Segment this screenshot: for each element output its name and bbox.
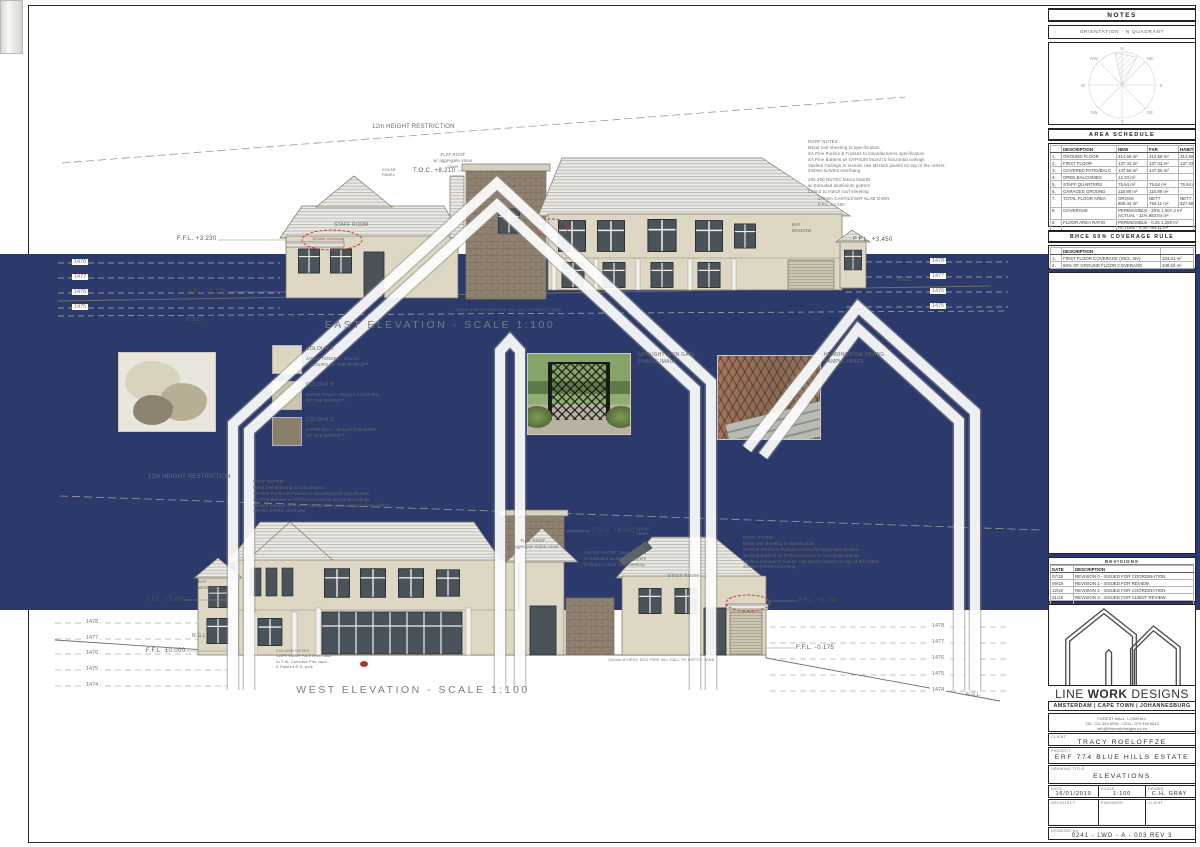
cell: DESCRIPTION [1062, 146, 1117, 153]
cell: 147.56 m² [1117, 167, 1148, 174]
bay-line: WINDOW [198, 585, 218, 591]
coverage-table: DESCRIPTION 1. FIRST FLOOR COVERAGE (INC… [1050, 247, 1194, 269]
west-elevation-drawing [55, 496, 1040, 701]
client-signature-box: CLIENT [1146, 800, 1193, 825]
client-name: TRACY ROELOFFZE [1049, 734, 1195, 746]
cell: 75.64 m² [1117, 181, 1148, 188]
colour-desc-line: JAPAN TRULY - DULUX COLOURS [306, 392, 379, 398]
contour-label: 1477 [930, 639, 946, 645]
area-schedule-table: DESCRIPTION NEW FAR HABITABLE 1. GROUND … [1048, 143, 1196, 227]
flat-roof-note-west: FLAT ROOF w/ aggregate stone cover [504, 538, 562, 550]
area-row: 8. COVERAGE PERMISSIBLE - 20% 1,007.2 m²… [1051, 207, 1194, 219]
contour-label: 1474 [84, 682, 100, 688]
cell: FIRST FLOOR [1062, 160, 1117, 167]
revisions-box: REVISIONS DATE DESCRIPTION 07/18 REVISIO… [1048, 557, 1196, 602]
drawing-title-label: DRAWING TITLE [1051, 767, 1084, 771]
signature-row: ARCHITECT ENGINEER CLIENT [1048, 799, 1196, 826]
gate-label-line: SAMPLE IMAGE [637, 359, 695, 366]
toc-label-west: T.O.C. +8.210 [592, 527, 634, 535]
cell: 6. [1051, 188, 1062, 195]
cell: 3. [1051, 167, 1062, 174]
svg-text:N: N [1120, 46, 1123, 51]
cell: REVISION 1 - ISSUED FOR REVIEW [1074, 580, 1194, 587]
fascia-line: w/ Extruded aluminium gutters [808, 183, 870, 189]
paving-label-line: HERRINGBONE PAVING [824, 352, 884, 359]
blank-notes-box [1048, 272, 1196, 554]
cell [1179, 174, 1194, 181]
sewer-note-east: 110mm Ø UPVC SOIL PIPE min. FALL TO SEPT… [455, 308, 561, 313]
contour-label: 1478 [930, 623, 946, 629]
contour-label: 1478 [930, 258, 946, 264]
cell: NETT527.66 m² [1179, 195, 1194, 207]
contact-box: FOREST MALL, LONEHILL TEL: 011 463 6936 … [1048, 713, 1196, 732]
svg-text:NW: NW [1090, 56, 1098, 61]
scale-label: SCALE [1101, 787, 1115, 791]
flat-roof-line: w/ aggregate stone cover [504, 544, 562, 550]
cell: 1. [1051, 255, 1062, 262]
roof-note-line: 400mm EAVES Overhang [253, 508, 390, 514]
cell-line: 794.11 m² [1149, 201, 1177, 206]
cell-line: 806.44 m² [1118, 201, 1146, 206]
solar-line: PANEL [382, 173, 396, 178]
contour-label: 1474 [930, 687, 946, 693]
cell: 2. [1051, 160, 1062, 167]
toc-label-east: T.O.C. +8.210 [413, 167, 455, 175]
staff-room-label-west: STAFF ROOM [668, 573, 699, 579]
coverage-rule-header: BHCE 60% COVERAGE RULE [1048, 230, 1196, 243]
notes-header: NOTES [1048, 8, 1196, 22]
colour-b-desc: JAPAN TRULY - DULUX COLOURS OF THE WORLD… [306, 392, 379, 404]
drawing-title-box: DRAWING TITLE ELEVATIONS [1048, 765, 1196, 784]
cell: 314.58 m² [1117, 153, 1148, 160]
elevation-line-art [0, 0, 1200, 847]
area-header-row: DESCRIPTION NEW FAR HABITABLE [1051, 146, 1194, 153]
cell: FAR [1148, 146, 1179, 153]
orientation-text: ORIENTATION - N QUADRANT [1049, 26, 1195, 34]
cell: REVISION 0 - ISSUED FOR COORDINATION [1074, 573, 1194, 580]
solar-line: PANEL [636, 532, 650, 537]
orientation-bar: ORIENTATION - N QUADRANT [1048, 25, 1196, 39]
contour-label: 1475 [72, 304, 88, 310]
gate-sample-label: WROUGHT IRON GATE SAMPLE IMAGE [637, 352, 695, 366]
compass-north-wedge [1115, 53, 1137, 85]
cell: OPEN BALCONIES [1062, 174, 1117, 181]
cell: 1. [1051, 153, 1062, 160]
drawing-number-label: DRAWING No. [1051, 829, 1079, 833]
cell: 314.58 m² [1179, 153, 1194, 160]
contour-label: 1476 [84, 650, 100, 656]
cell: 07/18 [1051, 573, 1074, 580]
roof-note-line: 400mm EAVES Overhang [743, 564, 880, 570]
area-row: 3. COVERED PATIO/BALC 147.56 m² 147.56 m… [1051, 167, 1194, 174]
coverage-header-row: DESCRIPTION [1051, 248, 1194, 255]
colour-b-label: COLOUR B [306, 382, 334, 389]
solar-panel-label-east: SOLAR PANEL [382, 168, 396, 179]
engineer-label: ENGINEER [1101, 801, 1123, 805]
roof-notes-west-1: ROOF NOTES: Metal roof sheeting to speci… [253, 479, 390, 514]
west-elevation-title: WEST ELEVATION - SCALE 1:100 [278, 683, 548, 698]
ffl-east-right: F.F.L. +3.450 [853, 236, 893, 244]
cell: HABITABLE [1179, 146, 1194, 153]
bay-window-label-west: BAY WINDOW [198, 579, 218, 591]
svg-text:NE: NE [1147, 56, 1153, 61]
east-elevation-title: EAST ELEVATION - SCALE 1:100 [300, 318, 580, 333]
colour-a-label: COLOUR A [306, 346, 333, 353]
contour-label: 1476 [930, 288, 946, 294]
colour-c-desc: JAPAN RICH - DULUX COLOURS OF THE WORLD™ [306, 427, 376, 439]
revision-row: 09/18 REVISION 1 - ISSUED FOR REVIEW [1051, 580, 1194, 587]
project-label: PROJECT [1051, 749, 1071, 753]
revision-row: 12/18 REVISION 2 - ISSUED FOR COORDINATI… [1051, 587, 1194, 594]
revisions-header-row: DATE DESCRIPTION [1051, 566, 1194, 573]
colour-c-label: COLOUR C [306, 417, 334, 424]
coverage-rule-title: BHCE 60% COVERAGE RULE [1049, 232, 1195, 240]
cell: 137.43 m² [1117, 160, 1148, 167]
ngl-label-west-right: N.G.L. [966, 692, 982, 699]
contour-label: 1475 [84, 666, 100, 672]
cell: COVERAGE [1062, 207, 1117, 219]
paving-label-line: SAMPLE IMAGE [824, 359, 884, 366]
ffl-west-base: F.F.L. -0.175 [796, 644, 834, 652]
contour-label: 1475 [930, 303, 946, 309]
contour-label: 1478 [72, 259, 88, 265]
ngl-label-west-left: N.G.L. [192, 633, 208, 640]
fascia-line: Colour to match roof sheeting [584, 562, 646, 568]
cell: FIRST FLOOR COVERAGE (INCL. BV) [1062, 255, 1161, 262]
cell-line: ACTUAL - 11% 553.04 m² [1118, 213, 1192, 218]
cell [1148, 174, 1179, 181]
revision-row: 07/18 REVISION 0 - ISSUED FOR COORDINATI… [1051, 573, 1194, 580]
coverage-row: 1. FIRST FLOOR COVERAGE (INCL. BV) 224.3… [1051, 255, 1194, 262]
fascia-note-west: 230-300 NUTEC fascia boards w/ Extruded … [584, 550, 646, 568]
cell: 12/18 [1051, 587, 1074, 594]
brand-cities-bar: AMSTERDAM | CAPE TOWN | JOHANNESBURG [1048, 701, 1196, 711]
cell: REVISION 3 - ISSUED FOR CLIENT REVIEW [1074, 594, 1194, 601]
cell: DESCRIPTION [1062, 248, 1161, 255]
cell: 137.43 m² [1148, 160, 1179, 167]
cell: 01/19 [1051, 594, 1074, 601]
area-row: 5. STAFF QUARTERS 75.64 m² 75.64 m² 75.6… [1051, 181, 1194, 188]
roof-note-line: SA Pine Purlins & Trusses to manufacture… [808, 151, 945, 157]
roof-note-line: SA Pine Battens w/ GYPSUM board to horiz… [808, 157, 945, 163]
cell: 4. [1051, 174, 1062, 181]
cell [1161, 248, 1194, 255]
column-notes-west: COLUMN NOTES: CAPE WASH Face brick base … [276, 649, 332, 670]
cell: DESCRIPTION [1074, 566, 1194, 573]
scale-box: SCALE 1:100 [1099, 786, 1146, 797]
cell: GROSS806.44 m² [1117, 195, 1148, 207]
roof-notes-east: ROOF NOTES: Metal roof sheeting to speci… [808, 139, 945, 174]
engineer-signature-box: ENGINEER [1099, 800, 1146, 825]
logo-box [1048, 604, 1196, 686]
cell: 137.43 m² [1179, 160, 1194, 167]
roof-notes-west-2: ROOF NOTES: Metal roof sheeting to speci… [743, 535, 880, 570]
cell: 09/18 [1051, 580, 1074, 587]
cell: 7. [1051, 195, 1062, 207]
coverage-row: 2. 60% OF GROUND FLOOR COVERAGE 348.62 m… [1051, 262, 1194, 269]
cell [1051, 146, 1062, 153]
area-row: 6. GARAGES GROUND 118.89 m² 118.89 m² [1051, 188, 1194, 195]
column-note-line: CAPE WASH Face brick base [276, 654, 332, 659]
cell [1051, 248, 1062, 255]
gate-label-line: WROUGHT IRON GATE [637, 352, 695, 359]
architect-label: ARCHITECT [1051, 801, 1075, 805]
roof-note-line: SA Pine Purlins & Trusses to manufacture… [743, 547, 880, 553]
brand-line: LINE [1055, 687, 1088, 701]
cell: 118.89 m² [1117, 188, 1148, 195]
cell: NEW [1117, 146, 1148, 153]
coverage-rule-table: DESCRIPTION 1. FIRST FLOOR COVERAGE (INC… [1048, 245, 1196, 269]
cell: 118.89 m² [1148, 188, 1179, 195]
notes-title: NOTES [1049, 10, 1195, 19]
area-row: 1. GROUND FLOOR 314.58 m² 314.58 m² 314.… [1051, 153, 1194, 160]
sewer-note-west: 110mm Ø UPVC SOIL PIPE min. FALL TO SEPT… [608, 658, 714, 663]
svg-text:W: W [1081, 83, 1086, 88]
fascia-note-east: 230-300 NUTEC fascia boards w/ Extruded … [808, 177, 870, 195]
drawing-number-box: DRAWING No. 0241 - LWD - A - 003 REV 3 [1048, 827, 1196, 840]
solar-panel-label-west: SOLAR PANEL [636, 527, 650, 538]
area-schedule-header: AREA SCHEDULE [1048, 128, 1196, 141]
brand-cities: AMSTERDAM | CAPE TOWN | JOHANNESBURG [1049, 702, 1195, 709]
area-row: 2. FIRST FLOOR 137.43 m² 137.43 m² 137.4… [1051, 160, 1194, 167]
revision-row: 01/19 REVISION 3 - ISSUED FOR CLIENT REV… [1051, 594, 1194, 601]
contour-label: 1478 [84, 619, 100, 625]
cell: 8. [1051, 207, 1062, 219]
cell: PERMISSIBLE - 20% 1,007.2 m²ACTUAL - 11%… [1117, 207, 1194, 219]
staff-room-label-east: STAFF ROOM [334, 222, 368, 229]
drawing-sheet: 12m HEIGHT RESTRICTION ROOF NOTES: Metal… [0, 0, 1200, 847]
roof-note-line: 400mm EAVES Overhang [808, 168, 945, 174]
ffl-east-left: F.F.L. +3.230 [177, 235, 217, 243]
date-label: DATE [1051, 787, 1062, 791]
client-box: CLIENT TRACY ROELOFFZE [1048, 733, 1196, 746]
fascia-line: 230-300 NUTEC fascia boards [808, 177, 870, 183]
roof-note-line: SA Pine Purlins & Trusses to manufacture… [253, 491, 390, 497]
roof-note-line: SA Pine Battens w/ GYPSUM board to horiz… [743, 553, 880, 559]
ffl-west-left: F.F.L. +3.450 [146, 596, 186, 604]
colour-desc-line: OF THE WORLD™ [306, 433, 376, 439]
area-table: DESCRIPTION NEW FAR HABITABLE 1. GROUND … [1050, 145, 1194, 239]
cell: NETT794.11 m² [1148, 195, 1179, 207]
contour-label: 1477 [930, 273, 946, 279]
contour-label: 1475 [930, 671, 946, 677]
cell: 147.56 m² [1148, 167, 1179, 174]
cell: GROUND FLOOR [1062, 153, 1117, 160]
date-scale-drawn-row: DATE 16/01/2019 SCALE 1:100 DRAWN C.H. G… [1048, 785, 1196, 798]
cell: 224.31 m² [1161, 255, 1194, 262]
contour-label: 1477 [72, 274, 88, 280]
colour-desc-line: COLOURS OF THE WORLD™ [306, 362, 368, 368]
cantilever-line: 170mm CANTILEVER SLAB OVER [818, 196, 890, 202]
area-row: 7. TOTAL FLOOR AREA GROSS806.44 m² NETT7… [1051, 195, 1194, 207]
cantilever-line: F.F.L. +3.450 [818, 202, 890, 208]
brand-designs: DESIGNS [1128, 687, 1189, 701]
colour-a-desc: JAPAN TENDER - DULUX COLOURS OF THE WORL… [306, 356, 368, 368]
client2-label: CLIENT [1148, 801, 1163, 805]
ffl-west-right: F.F.L. +3.230 [798, 597, 838, 605]
roof-note-line: SA Pine Battens w/ GYPSUM board to horiz… [253, 497, 390, 503]
cell: 12.33 m² [1117, 174, 1148, 181]
colour-desc-line: JAPAN TENDER - DULUX [306, 356, 368, 362]
overhang-note-east: 100mm overhang [312, 237, 344, 242]
height-restriction-label-east: 12m HEIGHT RESTRICTION [372, 123, 455, 131]
cell: STAFF QUARTERS [1062, 181, 1117, 188]
ngl-label-east-right: N.G.L. [897, 277, 913, 284]
cell: 75.64 m² [1179, 181, 1194, 188]
contour-label: 1477 [84, 635, 100, 641]
line-work-designs-logo [1049, 605, 1195, 685]
area-schedule-title: AREA SCHEDULE [1049, 130, 1195, 138]
colour-desc-line: OF THE WORLD™ [306, 398, 379, 404]
drawn-box: DRAWN C.H. GRAY [1146, 786, 1193, 797]
cell: 348.62 m² [1161, 262, 1194, 269]
fascia-line: 230-300 NUTEC fascia boards [584, 550, 646, 556]
cell: 314.58 m² [1148, 153, 1179, 160]
client-label: CLIENT [1051, 735, 1066, 739]
bay-window-label-east: BAY WINDOW [792, 222, 812, 234]
height-restriction-label-west: 12m HEIGHT RESTRICTION [148, 473, 231, 481]
bay-line: WINDOW [792, 228, 812, 234]
contact-email: info@lineworkdesigns.co.za [1049, 726, 1195, 731]
svg-text:SW: SW [1090, 110, 1098, 115]
fascia-line: Colour to match roof sheeting [808, 189, 870, 195]
paving-sample-label: HERRINGBONE PAVING SAMPLE IMAGE [824, 352, 884, 366]
drawn-label: DRAWN [1148, 787, 1164, 791]
date-box: DATE 16/01/2019 [1049, 786, 1099, 797]
cell: REVISION 2 - ISSUED FOR COORDINATION [1074, 587, 1194, 594]
cell: GARAGES GROUND [1062, 188, 1117, 195]
svg-text:SE: SE [1147, 110, 1153, 115]
cell: 5. [1051, 181, 1062, 188]
ngl-label-east-left: N.G.L. [186, 317, 202, 324]
column-note-line: & Painted R.S. pole [276, 665, 332, 670]
ffl-west-zero: F.F.L. ±0.000 [146, 647, 186, 655]
cell [1179, 188, 1194, 195]
cell: COVERED PATIO/BALC [1062, 167, 1117, 174]
cell: 2. [1051, 262, 1062, 269]
cell: 60% OF GROUND FLOOR COVERAGE [1062, 262, 1161, 269]
ffl-east-base: F.F.L. -0.170 [188, 288, 226, 296]
svg-text:E: E [1159, 83, 1162, 88]
cell: DATE [1051, 566, 1074, 573]
cantilever-note-east: 170mm CANTILEVER SLAB OVER F.F.L. +3.450 [818, 196, 890, 208]
cell: TOTAL FLOOR AREA [1062, 195, 1117, 207]
compass-box: N NE E SE S SW W NW [1048, 42, 1196, 125]
cell-line: 527.66 m² [1180, 201, 1192, 206]
contour-label: 1476 [72, 289, 88, 295]
cell [1179, 167, 1194, 174]
architect-signature-box: ARCHITECT [1049, 800, 1099, 825]
compass-rose: N NE E SE S SW W NW [1049, 43, 1195, 124]
cell: 75.64 m² [1148, 181, 1179, 188]
area-row: 4. OPEN BALCONIES 12.33 m² [1051, 174, 1194, 181]
brand-name: LINE WORK DESIGNS [1048, 687, 1196, 701]
contour-label: 1476 [930, 655, 946, 661]
project-box: PROJECT ERF 774 BLUE HILLS ESTATE [1048, 747, 1196, 764]
brand-work: WORK [1088, 687, 1128, 701]
fascia-line: w/ Extruded aluminium gutters [584, 556, 646, 562]
svg-text:S: S [1120, 119, 1123, 124]
colour-desc-line: JAPAN RICH - DULUX COLOURS [306, 427, 376, 433]
